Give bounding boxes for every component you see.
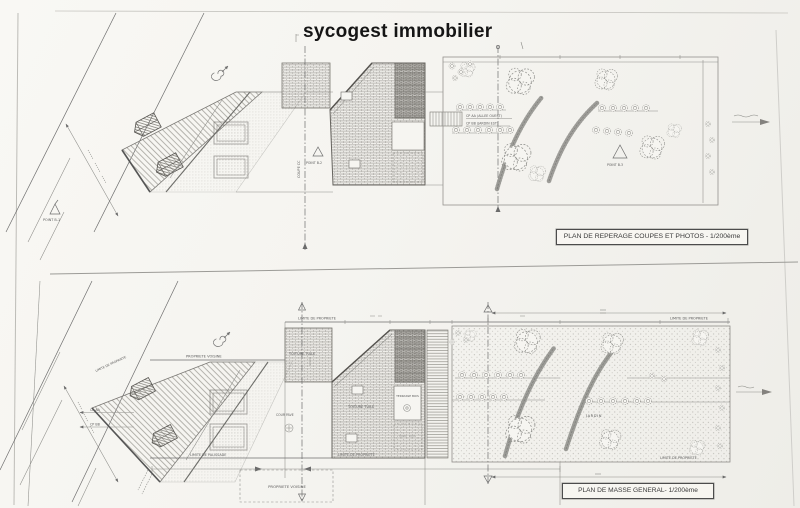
toiture-tuile-label-1: TOITURE TUILE — [288, 352, 315, 356]
sheet-title: sycogest immobilier — [303, 21, 492, 43]
propriete-voisine-box-label: PROPRIETE VOISINE — [268, 484, 306, 489]
limite-palissade-label: LIMITE DE PALISSADE — [190, 453, 226, 457]
top-section-cut-labels: CP AA (ALLEE OUEST) CP BB (JARDIN EST) — [466, 114, 512, 126]
bottom-plan-caption: PLAN DE MASSE GENERAL- 1/200ème — [562, 483, 714, 499]
point-b2-label: POINT B-2 — [306, 161, 322, 165]
limite-label-street: LIMITE DE PROPRIETE — [95, 355, 127, 373]
point-b3-label: POINT B-3 — [607, 163, 623, 167]
plans-divider-line — [50, 262, 798, 274]
top-garden: POINT B-3 — [443, 55, 718, 205]
top-plan: POINT B-1 — [6, 13, 770, 260]
top-main-building — [282, 63, 443, 185]
bottom-garden: JARDIN — [449, 326, 730, 462]
plan-drawing: POINT B-1 — [0, 0, 800, 508]
limite-label-top-left: LIMITE DE PROPRIETE — [298, 317, 336, 321]
point-b3-marker: POINT B-3 — [607, 145, 627, 167]
bottom-right-annotation — [736, 386, 772, 395]
toiture-tuile-label-2: TOITURE TUILE — [347, 405, 374, 409]
top-stairs — [430, 112, 462, 126]
cp-aa-label: CP AA (ALLEE OUEST) — [466, 114, 502, 118]
terrasse-bois: TERRASSE BOIS — [394, 386, 421, 420]
deck-slats — [427, 330, 448, 458]
point-b1-marker: POINT B-1 — [43, 200, 60, 222]
top-right-annotation — [732, 115, 770, 125]
terrasse-bois-label: TERRASSE BOIS — [395, 394, 419, 398]
propriete-voisine-label: PROPRIETE VOISINE — [186, 355, 222, 359]
scanned-plan-sheet: POINT B-1 — [0, 0, 800, 508]
cour-pave-label: COUR PAVE — [276, 413, 294, 417]
coupe-cc-label: COUPE CC — [297, 160, 301, 178]
limite-label-top-right: LIMITE DE PROPRIETE — [670, 317, 708, 321]
point-b1-label: POINT B-1 — [43, 218, 60, 222]
jardin-label: JARDIN — [585, 414, 602, 418]
cp-bb-short-label: CP BB — [90, 423, 101, 427]
bottom-main-building: TOITURE TUILE TOITURE TUILE TERRASSE BOI… — [285, 328, 448, 458]
top-plan-caption: PLAN DE REPERAGE COUPES ET PHOTOS - 1/20… — [556, 229, 748, 245]
bottom-plan: CP AA CP BB LIMITE DE PROPRIETE — [0, 281, 772, 506]
cp-bb-label: CP BB (JARDIN EST) — [466, 122, 498, 126]
